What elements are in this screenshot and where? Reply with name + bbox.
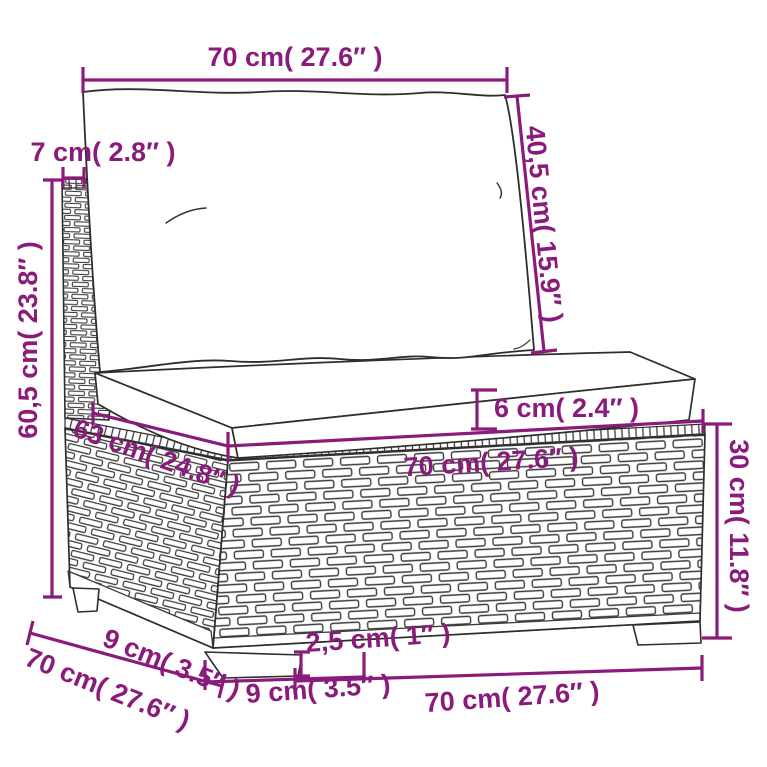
label-total-height: 60,5 cm( 23.8″ )	[13, 241, 43, 439]
label-base-height: 30 cm( 11.8″ )	[724, 439, 754, 613]
sofa-drawing	[62, 89, 705, 678]
sofa-dimension-drawing: 70 cm( 27.6″ ) 7 cm( 2.8″ ) 40,5 cm( 15.…	[0, 0, 767, 767]
label-back-panel-thickness: 7 cm( 2.8″ )	[31, 137, 176, 167]
foot-back-left	[73, 588, 99, 612]
dimension-back-cushion-width: 70 cm( 27.6″ )	[83, 42, 507, 93]
dimension-foot-height: 2,5 cm( 1″ )	[294, 618, 451, 676]
dimension-base-height: 30 cm( 11.8″ )	[702, 424, 754, 638]
foot-front-right	[633, 622, 701, 645]
backrest-cushion	[83, 89, 534, 372]
label-seat-cushion-thickness: 6 cm( 2.4″ )	[494, 393, 639, 423]
label-front-width: 70 cm( 27.6″ )	[424, 676, 601, 718]
label-back-cushion-width: 70 cm( 27.6″ )	[207, 42, 382, 72]
dimension-total-height: 60,5 cm( 23.8″ )	[13, 180, 62, 597]
dimension-diagram: 70 cm( 27.6″ ) 7 cm( 2.8″ ) 40,5 cm( 15.…	[0, 0, 767, 767]
